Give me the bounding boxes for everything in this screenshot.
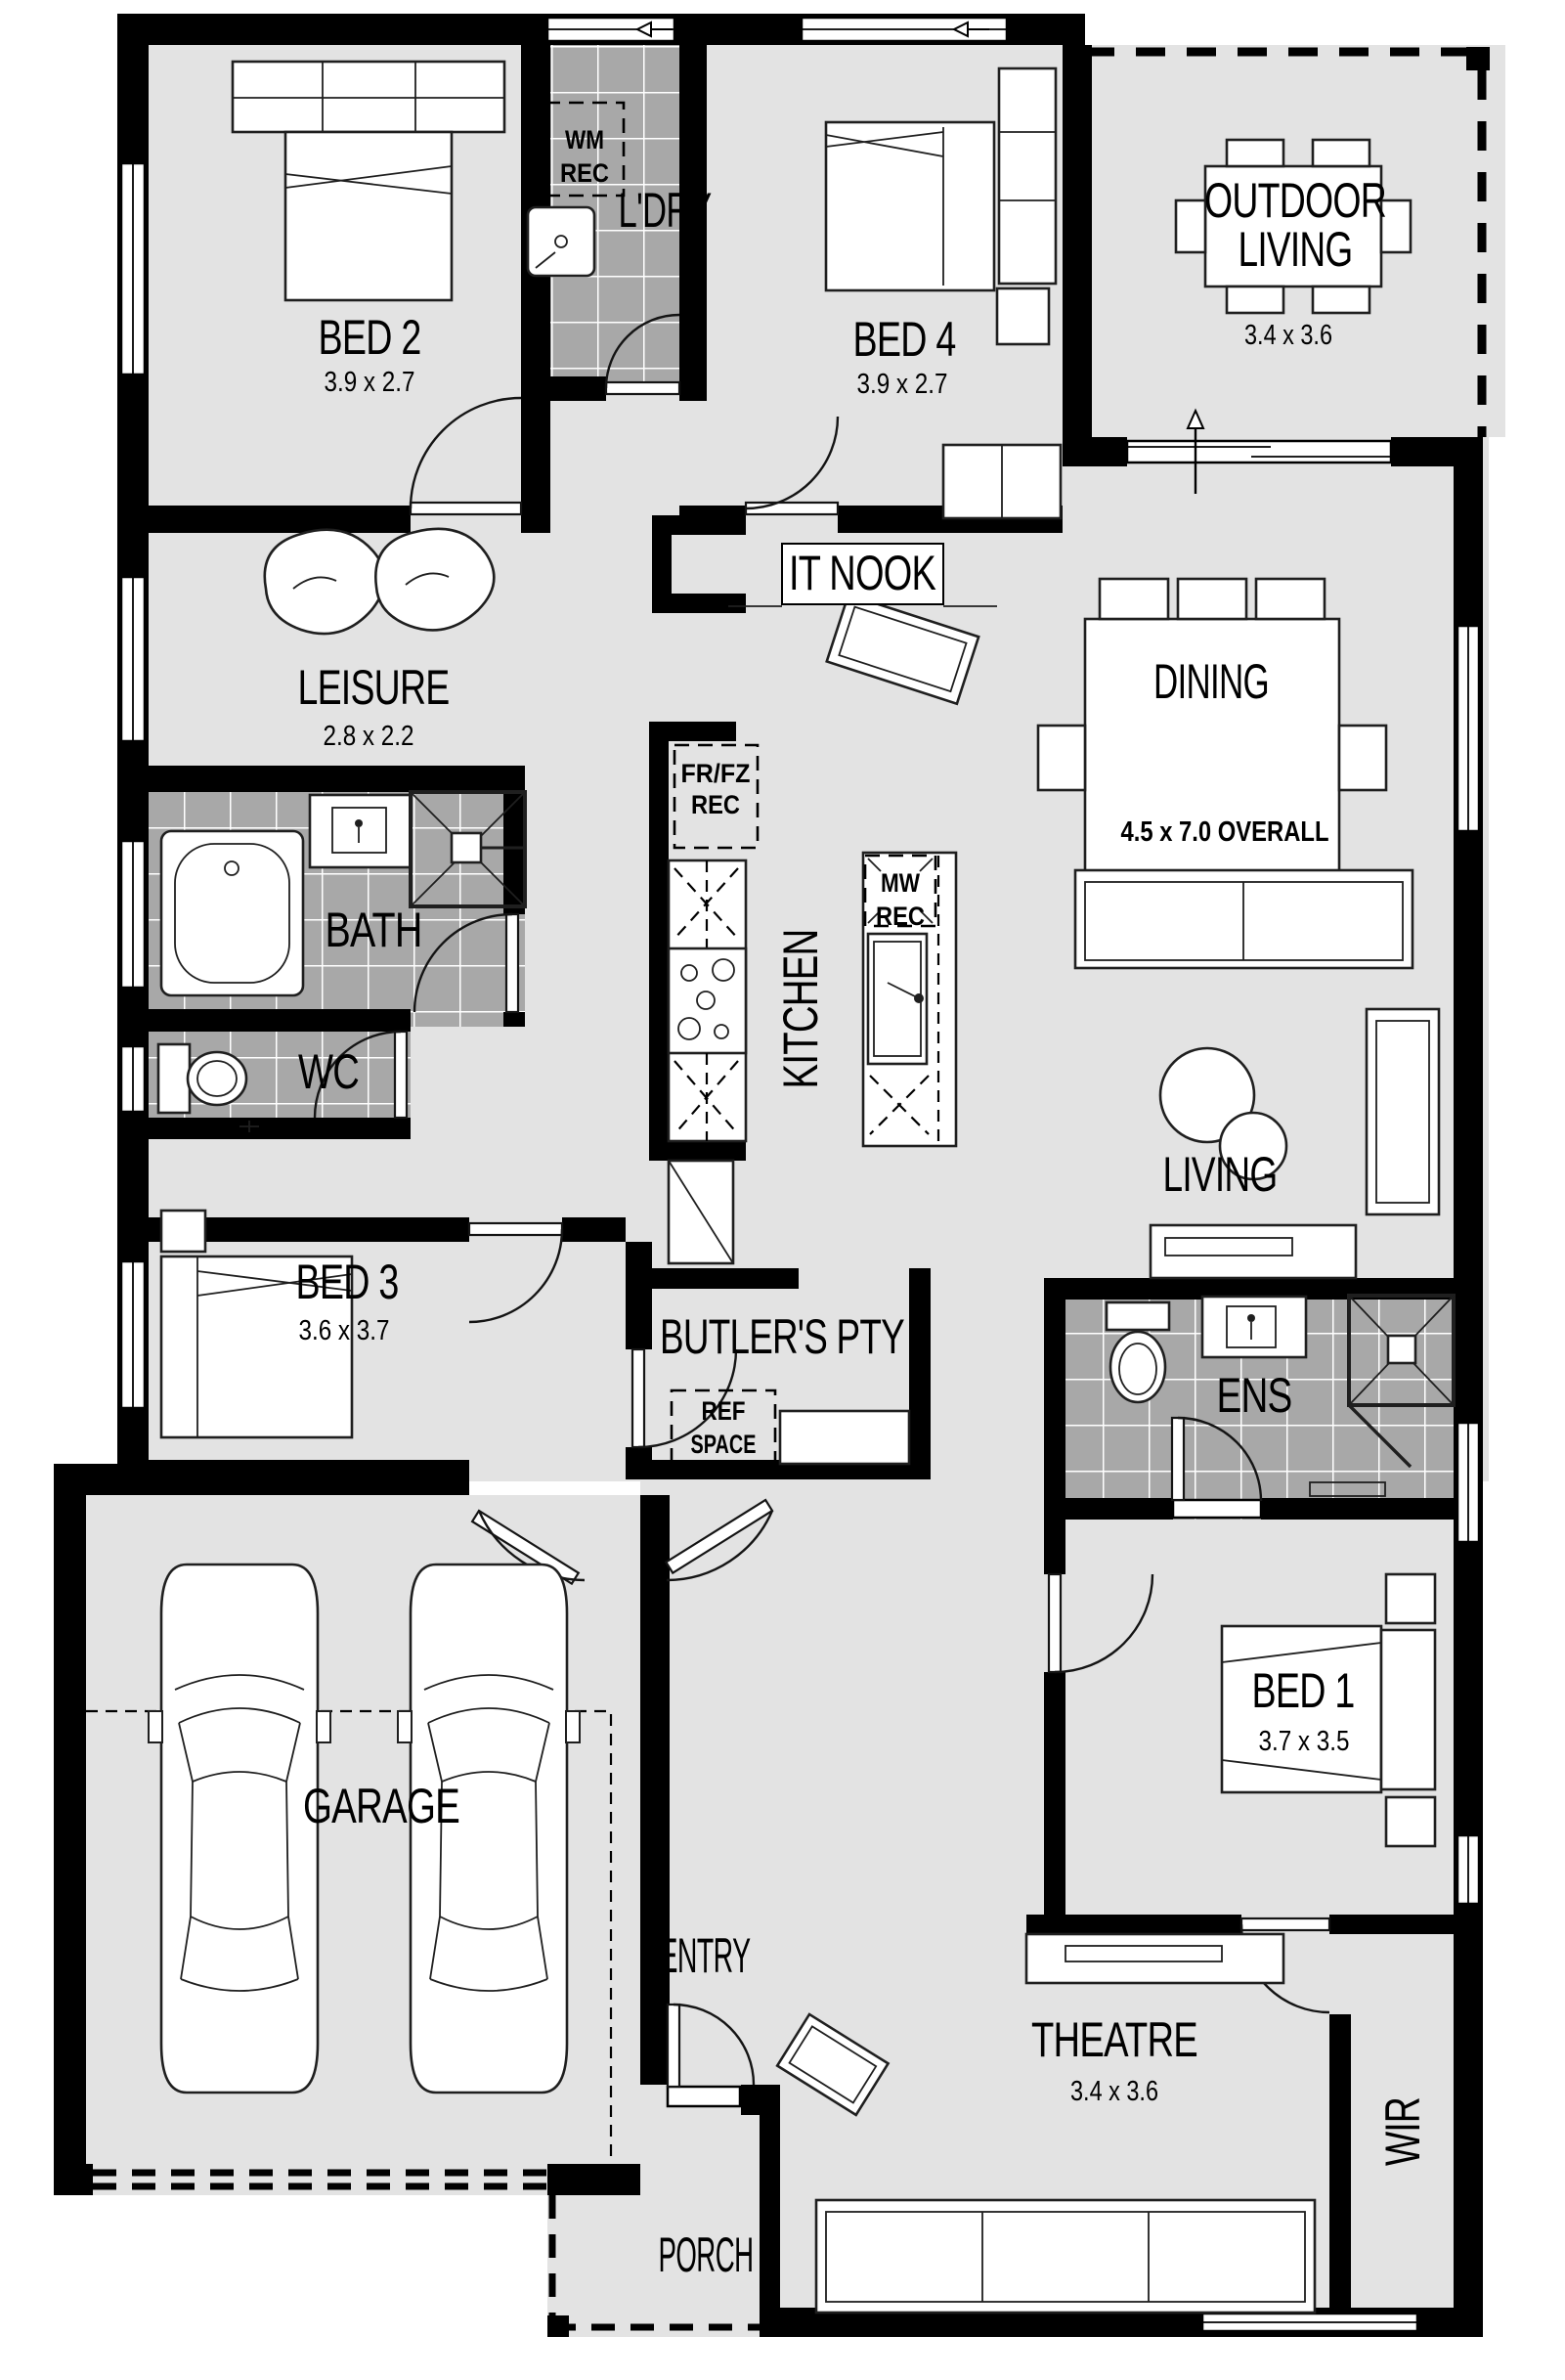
room-label-bed2: BED 2 xyxy=(319,310,421,365)
room-label-ldry: L'DRY xyxy=(619,183,712,238)
window xyxy=(121,577,145,741)
room-label-kitchen: KITCHEN xyxy=(773,930,828,1089)
room-dims-leisure: 2.8 x 2.2 xyxy=(324,721,414,752)
room-label-living: LIVING xyxy=(1163,1147,1278,1202)
room-label-theatre: THEATRE xyxy=(1031,2012,1197,2067)
room-label-entry: ENTRY xyxy=(660,1928,751,1983)
room-label-outdoor-2: LIVING xyxy=(1239,222,1353,277)
window xyxy=(1457,1835,1479,1904)
room-label-outdoor-1: OUTDOOR xyxy=(1204,173,1386,228)
room-label-garage: GARAGE xyxy=(303,1779,459,1833)
room-dims-bed2: 3.9 x 2.7 xyxy=(325,367,415,398)
room-label-bath: BATH xyxy=(326,903,422,957)
floorplan-drawing: BED 2 3.9 x 2.7 WM REC L'DRY BED 4 3.9 x… xyxy=(0,0,1565,2380)
mw-rec-label-2: REC xyxy=(876,902,925,931)
window xyxy=(1457,1423,1479,1542)
laundry-fixtures xyxy=(528,207,594,276)
room-dims-bed1: 3.7 x 3.5 xyxy=(1259,1726,1350,1757)
wm-rec-label-1: WM xyxy=(565,125,604,154)
frfz-rec-label-2: REC xyxy=(691,790,740,819)
window xyxy=(1457,626,1479,831)
room-dims-bed3: 3.6 x 3.7 xyxy=(299,1315,390,1346)
room-label-butlers: BUTLER'S PTY xyxy=(660,1309,904,1364)
room-label-ens: ENS xyxy=(1217,1368,1292,1423)
sliding-door xyxy=(1127,441,1391,463)
butlers-pantry-fixtures xyxy=(780,1411,909,1464)
floorplan-page: BED 2 3.9 x 2.7 WM REC L'DRY BED 4 3.9 x… xyxy=(0,0,1565,2380)
room-label-dining: DINING xyxy=(1153,654,1269,709)
ref-space-label-2: SPACE xyxy=(691,1430,757,1459)
room-label-bed1: BED 1 xyxy=(1252,1663,1355,1718)
room-label-itnook: IT NOOK xyxy=(789,546,935,600)
frfz-rec-label-1: FR/FZ xyxy=(681,759,751,788)
room-dims-bed4: 3.9 x 2.7 xyxy=(857,369,948,400)
window xyxy=(121,1046,145,1112)
window xyxy=(121,1261,145,1408)
room-label-wir: WIR xyxy=(1375,2097,1430,2166)
porch-floor xyxy=(547,2107,780,2337)
room-dims-outdoor: 3.4 x 3.6 xyxy=(1244,320,1332,351)
ref-space-label-1: REF xyxy=(702,1396,746,1426)
room-label-leisure: LEISURE xyxy=(298,660,450,715)
window xyxy=(1202,2314,1417,2331)
dining-overall-dims: 4.5 x 7.0 OVERALL xyxy=(1121,816,1329,848)
kitchen-bench xyxy=(669,860,746,1263)
room-dims-theatre: 3.4 x 3.6 xyxy=(1070,2076,1158,2107)
wm-rec-label-2: REC xyxy=(560,158,609,188)
room-label-bed3: BED 3 xyxy=(296,1255,399,1309)
room-label-wc: WC xyxy=(298,1044,359,1099)
window xyxy=(121,841,145,988)
room-label-porch: PORCH xyxy=(659,2227,754,2282)
window xyxy=(121,163,145,375)
mw-rec-label-1: MW xyxy=(881,868,920,898)
room-label-bed4: BED 4 xyxy=(853,312,956,367)
